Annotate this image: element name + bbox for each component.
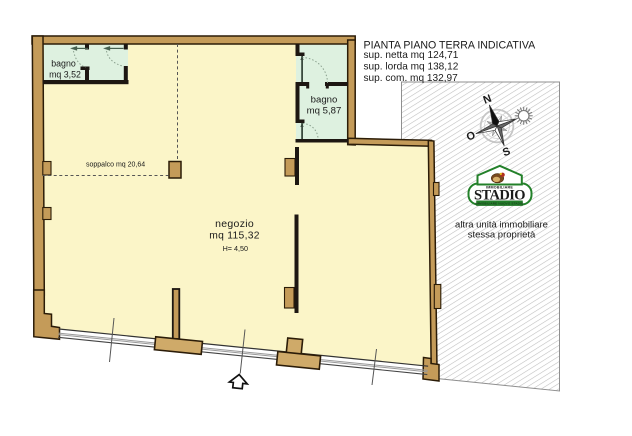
svg-text:bagno: bagno [311,94,338,105]
svg-text:sup. com. mq 132,97: sup. com. mq 132,97 [364,73,459,84]
svg-text:mq 115,32: mq 115,32 [209,230,260,241]
svg-text:soppalco mq 20,64: soppalco mq 20,64 [86,161,145,168]
svg-text:H= 4,50: H= 4,50 [223,244,248,253]
svg-text:IMMOBILIARE NUOVO STADIO: IMMOBILIARE NUOVO STADIO [475,202,524,206]
svg-text:negozio: negozio [215,218,254,230]
svg-text:stessa proprietà: stessa proprietà [468,229,536,240]
svg-text:sup. lorda mq 138,12: sup. lorda mq 138,12 [364,61,459,72]
svg-text:sup. netta mq 124,71: sup. netta mq 124,71 [364,50,459,61]
svg-text:mq 3,52: mq 3,52 [49,70,81,80]
svg-text:bagno: bagno [51,59,76,69]
svg-text:mq 5,87: mq 5,87 [307,106,342,117]
